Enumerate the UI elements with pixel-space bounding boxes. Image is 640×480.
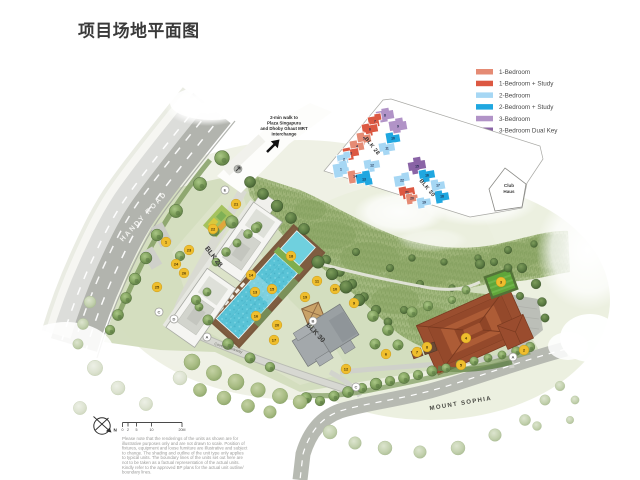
svg-text:D: D xyxy=(173,317,176,322)
svg-text:20: 20 xyxy=(410,197,414,201)
svg-text:13: 13 xyxy=(253,290,258,295)
svg-text:2: 2 xyxy=(127,428,129,432)
svg-text:3-Bedroom Dual Key: 3-Bedroom Dual Key xyxy=(499,128,558,135)
svg-text:2: 2 xyxy=(343,158,345,162)
svg-text:E: E xyxy=(224,188,227,193)
svg-text:3: 3 xyxy=(350,152,352,156)
svg-text:C: C xyxy=(158,310,161,315)
svg-text:B: B xyxy=(312,319,315,324)
svg-text:9: 9 xyxy=(397,125,399,129)
svg-text:C: C xyxy=(355,385,358,390)
svg-text:26: 26 xyxy=(182,271,187,276)
svg-text:2-min walk to: 2-min walk to xyxy=(270,115,298,120)
svg-text:Plaza Singapura: Plaza Singapura xyxy=(267,121,301,126)
svg-text:19: 19 xyxy=(422,201,426,205)
svg-text:2-Bedroom + Study: 2-Bedroom + Study xyxy=(499,104,554,111)
svg-text:12: 12 xyxy=(344,367,349,372)
svg-text:7: 7 xyxy=(374,120,376,124)
svg-text:14: 14 xyxy=(353,175,357,179)
svg-text:13: 13 xyxy=(362,178,366,182)
svg-text:3-Bedroom: 3-Bedroom xyxy=(499,116,530,123)
svg-text:boundary lines.: boundary lines. xyxy=(122,470,151,475)
svg-text:21: 21 xyxy=(234,202,239,207)
svg-text:Interchange: Interchange xyxy=(272,132,297,137)
svg-text:A: A xyxy=(512,355,515,360)
svg-text:Haus: Haus xyxy=(503,189,515,194)
svg-text:0: 0 xyxy=(122,428,124,432)
svg-text:A: A xyxy=(206,335,209,340)
svg-text:1: 1 xyxy=(340,168,342,172)
svg-text:25: 25 xyxy=(155,285,160,290)
svg-text:1-Bedroom + Study: 1-Bedroom + Study xyxy=(499,81,554,88)
svg-text:20: 20 xyxy=(275,323,280,328)
svg-text:16: 16 xyxy=(254,314,259,319)
svg-text:19: 19 xyxy=(303,295,308,300)
svg-text:4: 4 xyxy=(356,145,358,149)
svg-text:5: 5 xyxy=(363,137,365,141)
svg-text:10: 10 xyxy=(150,428,154,432)
svg-text:8: 8 xyxy=(384,114,386,118)
svg-text:20M: 20M xyxy=(179,428,186,432)
svg-text:17: 17 xyxy=(436,184,440,188)
svg-text:Club: Club xyxy=(504,183,514,188)
svg-text:22: 22 xyxy=(400,179,404,183)
svg-text:10: 10 xyxy=(391,137,395,141)
svg-text:项目场地平面图: 项目场地平面图 xyxy=(78,21,200,41)
svg-text:18: 18 xyxy=(440,195,444,199)
svg-text:17: 17 xyxy=(272,338,277,343)
svg-text:24: 24 xyxy=(174,262,179,267)
svg-text:23: 23 xyxy=(187,248,192,253)
svg-text:21: 21 xyxy=(405,191,409,195)
svg-text:22: 22 xyxy=(211,227,216,232)
svg-text:15: 15 xyxy=(270,287,275,292)
svg-text:16: 16 xyxy=(425,174,429,178)
svg-text:12: 12 xyxy=(370,164,374,168)
svg-text:14: 14 xyxy=(249,273,254,278)
svg-text:2-Bedroom: 2-Bedroom xyxy=(499,92,530,99)
svg-text:5: 5 xyxy=(136,428,138,432)
svg-text:11: 11 xyxy=(385,147,389,151)
svg-text:and Dhoby Ghaut MRT: and Dhoby Ghaut MRT xyxy=(260,126,308,131)
svg-text:18: 18 xyxy=(289,254,294,259)
svg-text:10: 10 xyxy=(333,287,338,292)
svg-text:1-Bedroom: 1-Bedroom xyxy=(499,69,530,76)
svg-text:15: 15 xyxy=(415,165,419,169)
svg-text:6: 6 xyxy=(369,128,371,132)
